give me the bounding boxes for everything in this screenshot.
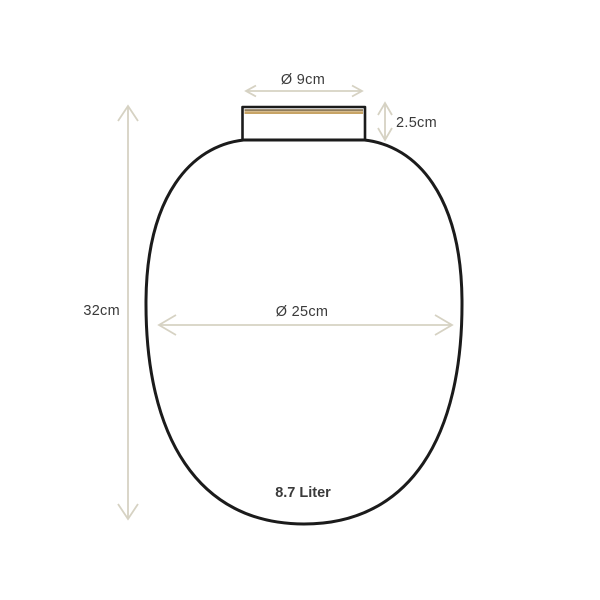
dimension-diagram: Ø 9cm 2.5cm 32cm Ø 25cm 8.7 Liter (0, 0, 600, 600)
dimension-neck-height (378, 103, 392, 140)
volume-label: 8.7 Liter (275, 485, 331, 501)
neck-height-label: 2.5cm (396, 115, 437, 131)
diagram-canvas: Ø 9cm 2.5cm 32cm Ø 25cm 8.7 Liter (0, 0, 600, 600)
vase-body-outline (146, 140, 462, 524)
top-diameter-label: Ø 9cm (281, 72, 325, 88)
total-height-label: 32cm (83, 303, 120, 319)
body-diameter-label: Ø 25cm (276, 304, 329, 320)
dimension-total-height (118, 106, 138, 519)
